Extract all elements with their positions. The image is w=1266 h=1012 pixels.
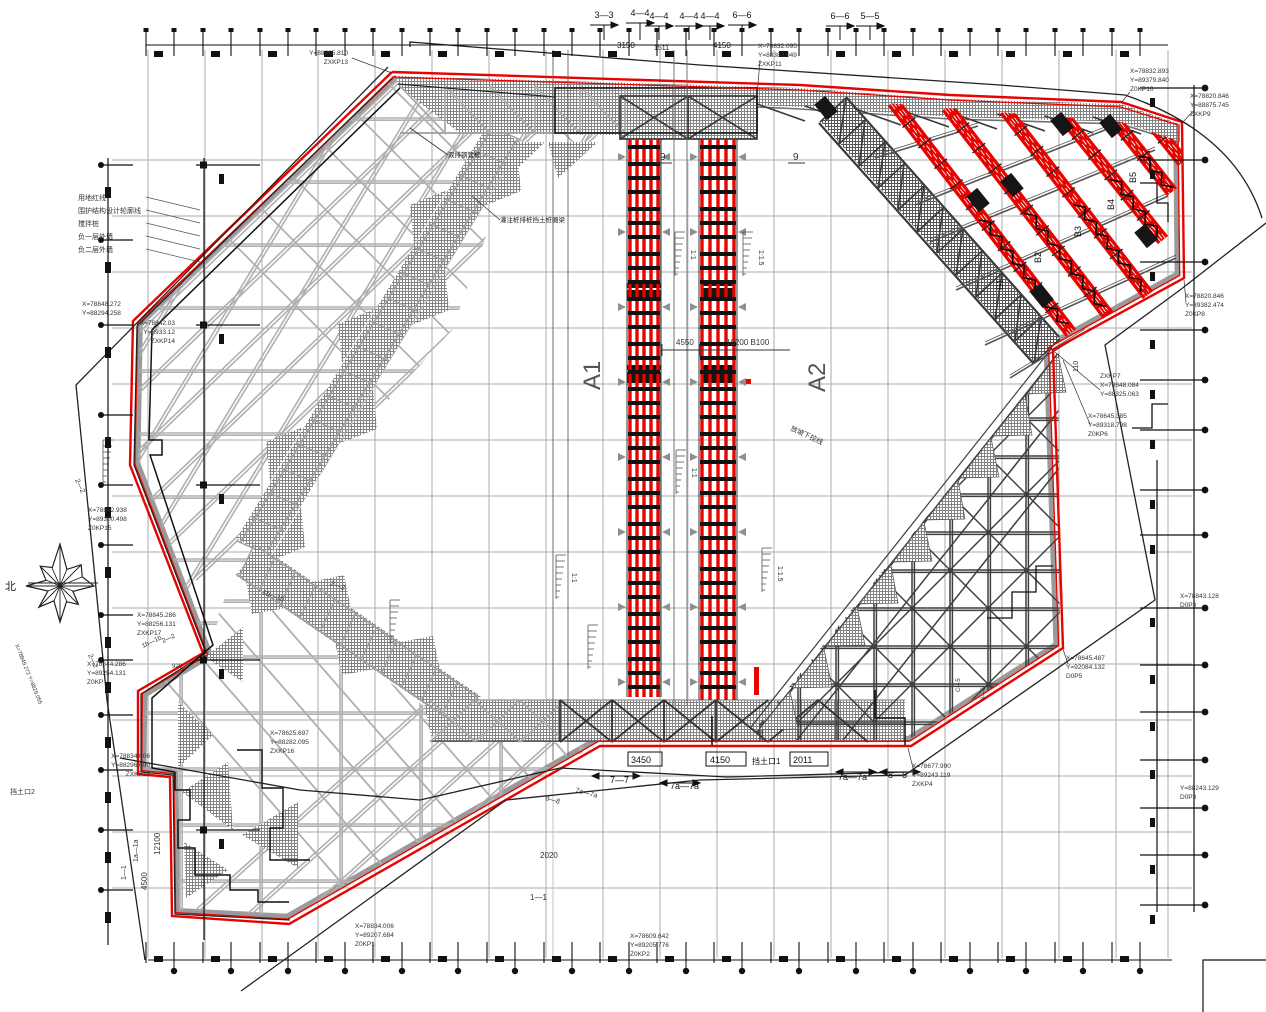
svg-text:B5: B5 — [1128, 172, 1138, 183]
svg-text:1—1: 1—1 — [530, 893, 547, 902]
svg-text:灌注桩排桩挡土桩圈梁: 灌注桩排桩挡土桩圈梁 — [500, 215, 566, 224]
svg-text:X=78848.272: X=78848.272 — [82, 301, 121, 308]
svg-text:1:1.5: 1:1.5 — [776, 566, 783, 582]
svg-text:2011: 2011 — [793, 755, 812, 765]
svg-text:ZXKP19: ZXKP19 — [126, 771, 151, 778]
svg-text:4—4: 4—4 — [679, 11, 698, 21]
svg-text:6—6: 6—6 — [981, 687, 987, 700]
svg-text:X=78645.487: X=78645.487 — [1066, 655, 1105, 662]
svg-text:Z0KP1: Z0KP1 — [355, 941, 375, 948]
svg-text:Y=88294.258: Y=88294.258 — [82, 310, 121, 317]
svg-text:B1: B1 — [995, 279, 1005, 290]
svg-text:X=78625.697: X=78625.697 — [270, 730, 309, 737]
svg-text:D0P3: D0P3 — [1180, 602, 1197, 609]
svg-text:Y=89207.684: Y=89207.684 — [355, 932, 394, 939]
svg-text:Z0KP: Z0KP — [87, 679, 103, 686]
svg-text:X=78820.846: X=78820.846 — [1185, 293, 1224, 300]
svg-text:920: 920 — [172, 664, 183, 670]
svg-text:用地红线: 用地红线 — [78, 193, 106, 202]
svg-text:Y=88325.063: Y=88325.063 — [1100, 391, 1139, 398]
svg-text:6—6: 6—6 — [732, 10, 751, 20]
svg-text:X=78677.990: X=78677.990 — [912, 763, 951, 770]
svg-text:5—5: 5—5 — [860, 11, 879, 21]
svg-text:1:1: 1:1 — [690, 468, 697, 478]
svg-text:X=78832.095: X=78832.095 — [758, 43, 797, 50]
svg-text:X=78845.286: X=78845.286 — [137, 612, 176, 619]
svg-text:3—3: 3—3 — [594, 10, 613, 20]
svg-text:Z0KP8: Z0KP8 — [1185, 311, 1205, 318]
svg-text:X=78834.006: X=78834.006 — [355, 923, 394, 930]
svg-text:1—1: 1—1 — [121, 865, 128, 880]
svg-text:1:1: 1:1 — [689, 250, 696, 260]
svg-text:双排钢管桩: 双排钢管桩 — [448, 150, 481, 159]
svg-text:3150: 3150 — [617, 41, 635, 50]
svg-text:负二层外墙: 负二层外墙 — [78, 245, 113, 254]
svg-text:1511: 1511 — [654, 45, 669, 52]
svg-text:X=78820.846: X=78820.846 — [1190, 93, 1229, 100]
svg-text:6—6: 6—6 — [830, 11, 849, 21]
svg-text:A2: A2 — [804, 363, 831, 392]
svg-text:X=78645.385: X=78645.385 — [1088, 413, 1127, 420]
svg-text:ZXKP11: ZXKP11 — [758, 61, 782, 68]
svg-text:Z0KP10: Z0KP10 — [1130, 86, 1154, 93]
svg-text:1:1: 1:1 — [570, 573, 577, 583]
svg-text:Z0KP2: Z0KP2 — [630, 951, 650, 958]
svg-text:4—4: 4—4 — [630, 8, 649, 18]
svg-text:Y=88243.129: Y=88243.129 — [1180, 785, 1219, 792]
svg-text:X=78834.006: X=78834.006 — [111, 753, 150, 760]
svg-text:ZXKP14: ZXKP14 — [151, 338, 176, 345]
svg-text:Y=89243.119: Y=89243.119 — [912, 772, 951, 779]
svg-text:3450: 3450 — [631, 755, 651, 765]
svg-text:12100: 12100 — [153, 832, 162, 855]
svg-text:B4: B4 — [1106, 199, 1116, 210]
svg-text:D0P5: D0P5 — [1066, 673, 1083, 680]
svg-text:Y=92084.132: Y=92084.132 — [1066, 664, 1105, 671]
svg-text:ZXKP9: ZXKP9 — [1190, 111, 1211, 118]
svg-text:Y=89318.798: Y=89318.798 — [1088, 422, 1127, 429]
svg-text:Z0KP15: Z0KP15 — [88, 525, 112, 532]
svg-text:X=78843.128: X=78843.128 — [1180, 593, 1219, 600]
svg-text:110: 110 — [1073, 361, 1080, 372]
svg-text:Y=88256.131: Y=88256.131 — [137, 621, 176, 628]
svg-text:9: 9 — [660, 152, 666, 163]
svg-text:Y=88365.810: Y=88365.810 — [309, 50, 348, 57]
svg-text:4—4: 4—4 — [700, 11, 719, 21]
svg-text:4150: 4150 — [710, 755, 730, 765]
svg-text:4550: 4550 — [676, 338, 694, 347]
svg-text:Y=88875.745: Y=88875.745 — [1190, 102, 1229, 109]
svg-text:围护结构设计轮廓线: 围护结构设计轮廓线 — [78, 206, 141, 215]
svg-text:4—4: 4—4 — [649, 11, 668, 21]
svg-text:ZXKP7: ZXKP7 — [1100, 373, 1121, 380]
svg-text:B3: B3 — [1073, 226, 1083, 237]
svg-text:Y=89382.474: Y=89382.474 — [1185, 302, 1224, 309]
svg-text:挡土口2: 挡土口2 — [10, 787, 35, 796]
svg-text:Z0KP6: Z0KP6 — [1088, 431, 1108, 438]
svg-text:C—5: C—5 — [956, 678, 962, 692]
svg-text:Y=88383.049: Y=88383.049 — [758, 52, 797, 59]
svg-text:1:1.5: 1:1.5 — [757, 250, 764, 266]
svg-text:负一层外墙: 负一层外墙 — [78, 232, 113, 241]
svg-text:Y=8933.12: Y=8933.12 — [143, 329, 175, 336]
svg-text:2020: 2020 — [540, 851, 558, 860]
svg-text:X=78832.893: X=78832.893 — [1130, 68, 1169, 75]
svg-text:4150: 4150 — [713, 41, 731, 50]
svg-text:Y=88296.000: Y=88296.000 — [111, 762, 150, 769]
svg-text:X=78842.938: X=78842.938 — [88, 507, 127, 514]
svg-text:北: 北 — [5, 580, 16, 593]
svg-text:4500: 4500 — [140, 872, 149, 890]
svg-text:Y=89205.776: Y=89205.776 — [630, 942, 669, 949]
svg-text:ZXKP4: ZXKP4 — [912, 781, 933, 788]
svg-text:X=78842.03: X=78842.03 — [140, 320, 176, 327]
svg-text:ZXKP13: ZXKP13 — [324, 59, 349, 66]
svg-text:搅拌桩: 搅拌桩 — [78, 219, 99, 228]
svg-text:X=78648.084: X=78648.084 — [1100, 382, 1139, 389]
svg-text:Y=89300.498: Y=89300.498 — [88, 516, 127, 523]
svg-text:ZXKP16: ZXKP16 — [270, 748, 295, 755]
svg-text:1a—1a: 1a—1a — [133, 839, 140, 862]
svg-text:A1: A1 — [579, 361, 606, 390]
svg-text:挡土口1: 挡土口1 — [752, 756, 781, 766]
svg-text:X=78609.642: X=78609.642 — [630, 933, 669, 940]
svg-text:10200 B100: 10200 B100 — [726, 338, 770, 347]
svg-text:D0P3: D0P3 — [1180, 794, 1197, 801]
svg-text:Y=88282.095: Y=88282.095 — [270, 739, 309, 746]
svg-text:Y=89379.840: Y=89379.840 — [1130, 77, 1169, 84]
svg-text:B2: B2 — [1033, 252, 1043, 263]
svg-text:Y=89254.131: Y=89254.131 — [87, 670, 126, 677]
svg-text:9: 9 — [793, 152, 799, 163]
